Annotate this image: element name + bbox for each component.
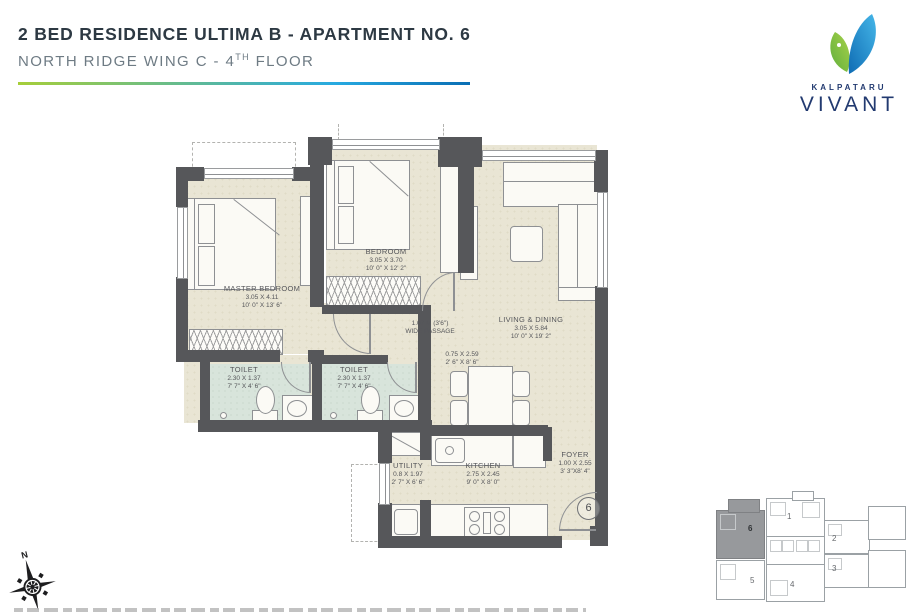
washbasin-bowl (287, 400, 307, 417)
compass-north-label: N (20, 549, 29, 560)
dining-chair (450, 371, 468, 397)
pillow (198, 246, 215, 286)
wall (378, 425, 392, 463)
room-label-foyer: FOYER 1.00 X 2.55 3' 3"X8' 4" (542, 450, 608, 477)
key-plan-bump (792, 491, 814, 501)
wall (292, 167, 312, 181)
key-plan-num-2: 2 (832, 534, 836, 543)
wall (458, 167, 474, 273)
wall (176, 350, 280, 362)
key-plan-room (720, 564, 736, 580)
pillow (198, 204, 215, 244)
room-label-living-dining: LIVING & DINING 3.05 X 5.84 10' 0" X 19'… (468, 315, 594, 342)
room-label-toilet2: TOILET 2.30 X 1.37 7' 7" X 4' 6" (313, 365, 395, 392)
washbasin-bowl (394, 400, 414, 417)
wall (420, 500, 431, 540)
compass-icon: N (6, 549, 62, 613)
room-label-master-bedroom: MASTER BEDROOM 3.05 X 4.11 10' 0" X 13' … (198, 284, 326, 311)
dining-table (468, 366, 513, 430)
room-label-kitchen: KITCHEN 2.75 X 2.45 9' 0" X 8' 0" (437, 461, 529, 488)
dining-chair (512, 371, 530, 397)
page-title: 2 BED RESIDENCE ULTIMA B - APARTMENT NO.… (18, 24, 471, 45)
sofa-armrest (558, 287, 598, 301)
room-label-toilet1: TOILET 2.30 X 1.37 7' 7" X 4' 6" (203, 365, 285, 392)
accent-rule (18, 82, 470, 85)
wall (420, 425, 548, 436)
brand-logo: KALPATARU VIVANT (793, 12, 905, 117)
key-plan-wing (868, 550, 906, 588)
room-label-bedroom: BEDROOM 3.05 X 3.70 10' 0" X 12' 2" (327, 247, 445, 274)
dashed-tick (338, 124, 339, 140)
key-plan-room (720, 514, 736, 530)
key-plan-num-1: 1 (787, 512, 791, 521)
passage-label: 1.07 M (3'6") WIDE PASSAGE (382, 320, 478, 337)
wall (420, 432, 431, 460)
unit-number-badge: 6 (577, 497, 600, 520)
key-plan-num-5: 5 (750, 576, 754, 585)
key-plan-lift (808, 540, 820, 552)
window (204, 168, 294, 179)
key-plan-num-3: 3 (832, 564, 836, 573)
toilet2-door-leaf (415, 362, 417, 392)
key-plan-lift (782, 540, 794, 552)
wall (594, 150, 608, 192)
room-label-utility: UTILITY 0.8 X 1.97 2' 7" X 6' 6" (376, 461, 440, 488)
wall (378, 536, 562, 548)
window (597, 192, 608, 288)
floor-plan-page: 2 BED RESIDENCE ULTIMA B - APARTMENT NO.… (0, 0, 920, 613)
key-plan-lift (770, 540, 782, 552)
floor-drain (330, 412, 337, 419)
key-plan-room (770, 580, 788, 596)
sink-drain (445, 446, 454, 455)
hob-control (483, 512, 491, 534)
burner (494, 511, 505, 522)
window (177, 207, 188, 279)
wall (438, 137, 482, 167)
key-plan: 1 2 3 4 5 6 (710, 488, 910, 606)
cutoff-disclaimer-text (14, 608, 586, 612)
leaf-logo-icon (814, 12, 884, 76)
entrance-door-leaf (559, 529, 596, 531)
key-plan-num-4: 4 (790, 580, 794, 589)
key-plan-room (802, 502, 820, 518)
wall (198, 420, 432, 432)
brand-product: VIVANT (793, 93, 905, 117)
sofa-chaise-back (577, 204, 598, 290)
burner (494, 524, 505, 535)
coffee-table (510, 226, 543, 262)
floor-drain (220, 412, 227, 419)
key-plan-wing (868, 506, 906, 540)
washing-machine-drum (394, 509, 418, 535)
pillow (338, 206, 354, 244)
bedroom-wardrobe-hatch (326, 276, 421, 306)
passage-door-leaf (369, 314, 371, 353)
key-plan-lift (796, 540, 808, 552)
strip-dimension-label: 0.75 X 2.59 2' 6" X 8' 6" (430, 351, 494, 368)
brand-name: KALPATARU (793, 83, 905, 92)
dining-chair (512, 400, 530, 426)
bedroom-door-leaf (453, 272, 455, 311)
wall (322, 305, 420, 314)
wall (308, 137, 332, 165)
key-plan-room (770, 502, 786, 516)
dining-chair (450, 400, 468, 426)
window (332, 139, 440, 150)
key-plan-num-6: 6 (748, 524, 752, 533)
burner (469, 511, 480, 522)
toilet1-door-leaf (309, 362, 311, 392)
window (482, 150, 596, 161)
pillow (338, 166, 354, 204)
key-plan-unit-6-tab (728, 499, 760, 513)
burner (469, 524, 480, 535)
wall (176, 167, 188, 207)
wall (176, 277, 188, 360)
page-subtitle: NORTH RIDGE WING C - 4TH FLOOR (18, 52, 314, 70)
